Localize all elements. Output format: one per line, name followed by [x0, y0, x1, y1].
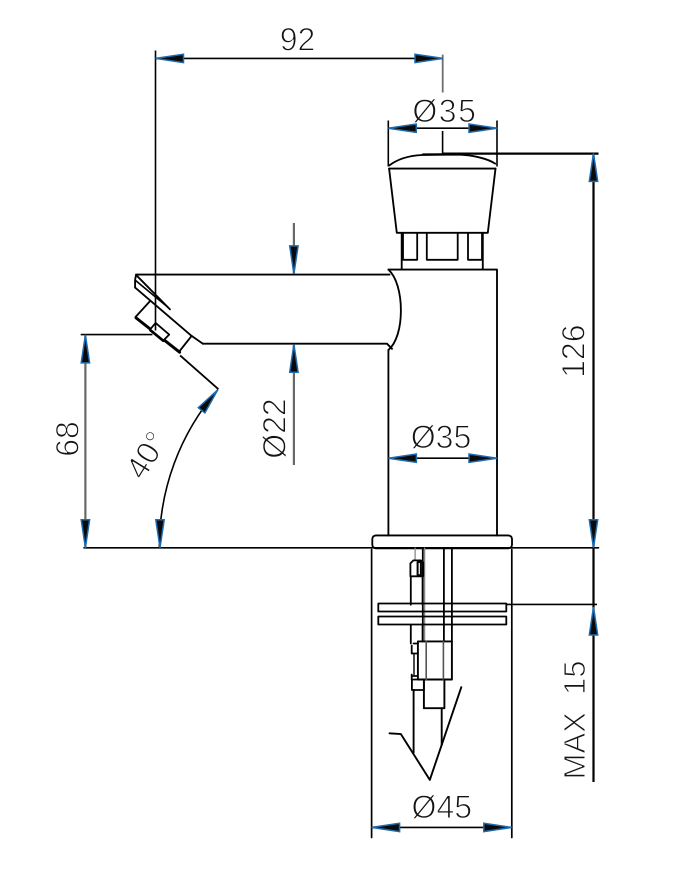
svg-text:Ø45: Ø45 — [412, 789, 472, 825]
svg-text:Ø22: Ø22 — [256, 398, 292, 458]
svg-text:40°: 40° — [118, 425, 174, 485]
svg-text:Ø35: Ø35 — [411, 419, 471, 455]
svg-text:126: 126 — [556, 325, 592, 378]
svg-text:92: 92 — [280, 22, 316, 58]
svg-text:MAX 15: MAX 15 — [557, 660, 592, 779]
svg-text:Ø35: Ø35 — [412, 93, 477, 129]
svg-text:68: 68 — [49, 421, 85, 457]
